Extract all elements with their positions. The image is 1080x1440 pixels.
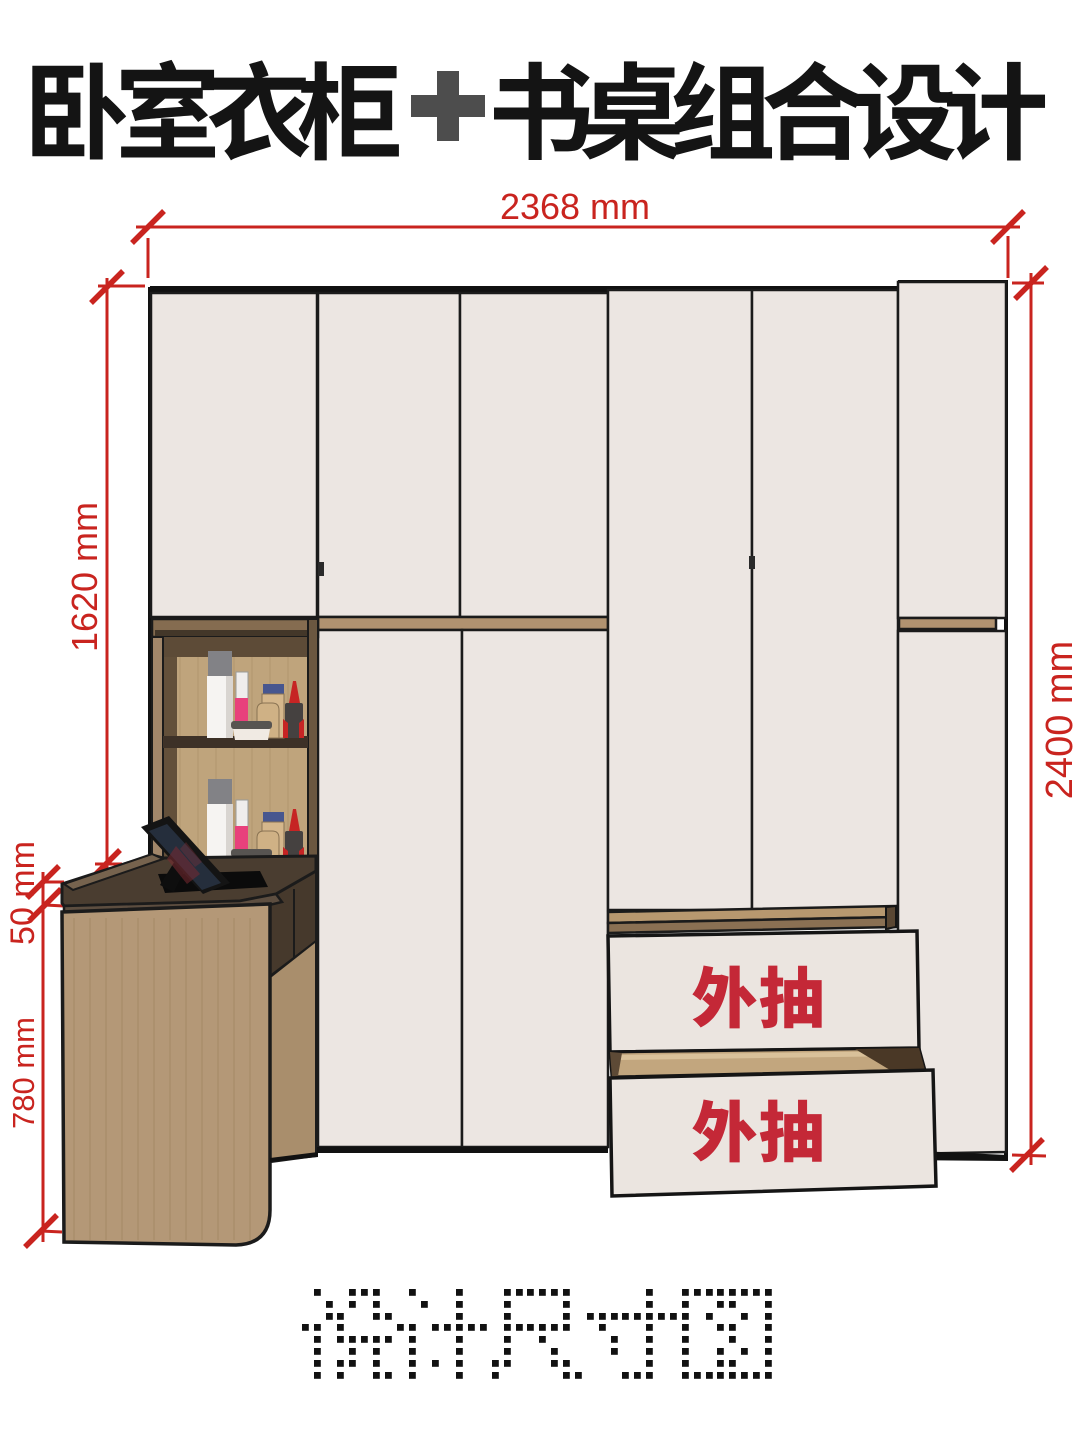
svg-text:2368 mm: 2368 mm: [500, 186, 650, 227]
svg-text:2400 mm: 2400 mm: [1039, 641, 1080, 799]
svg-text:780 mm: 780 mm: [6, 1017, 41, 1129]
svg-text:50 mm: 50 mm: [4, 841, 42, 945]
svg-text:1620 mm: 1620 mm: [64, 502, 105, 652]
